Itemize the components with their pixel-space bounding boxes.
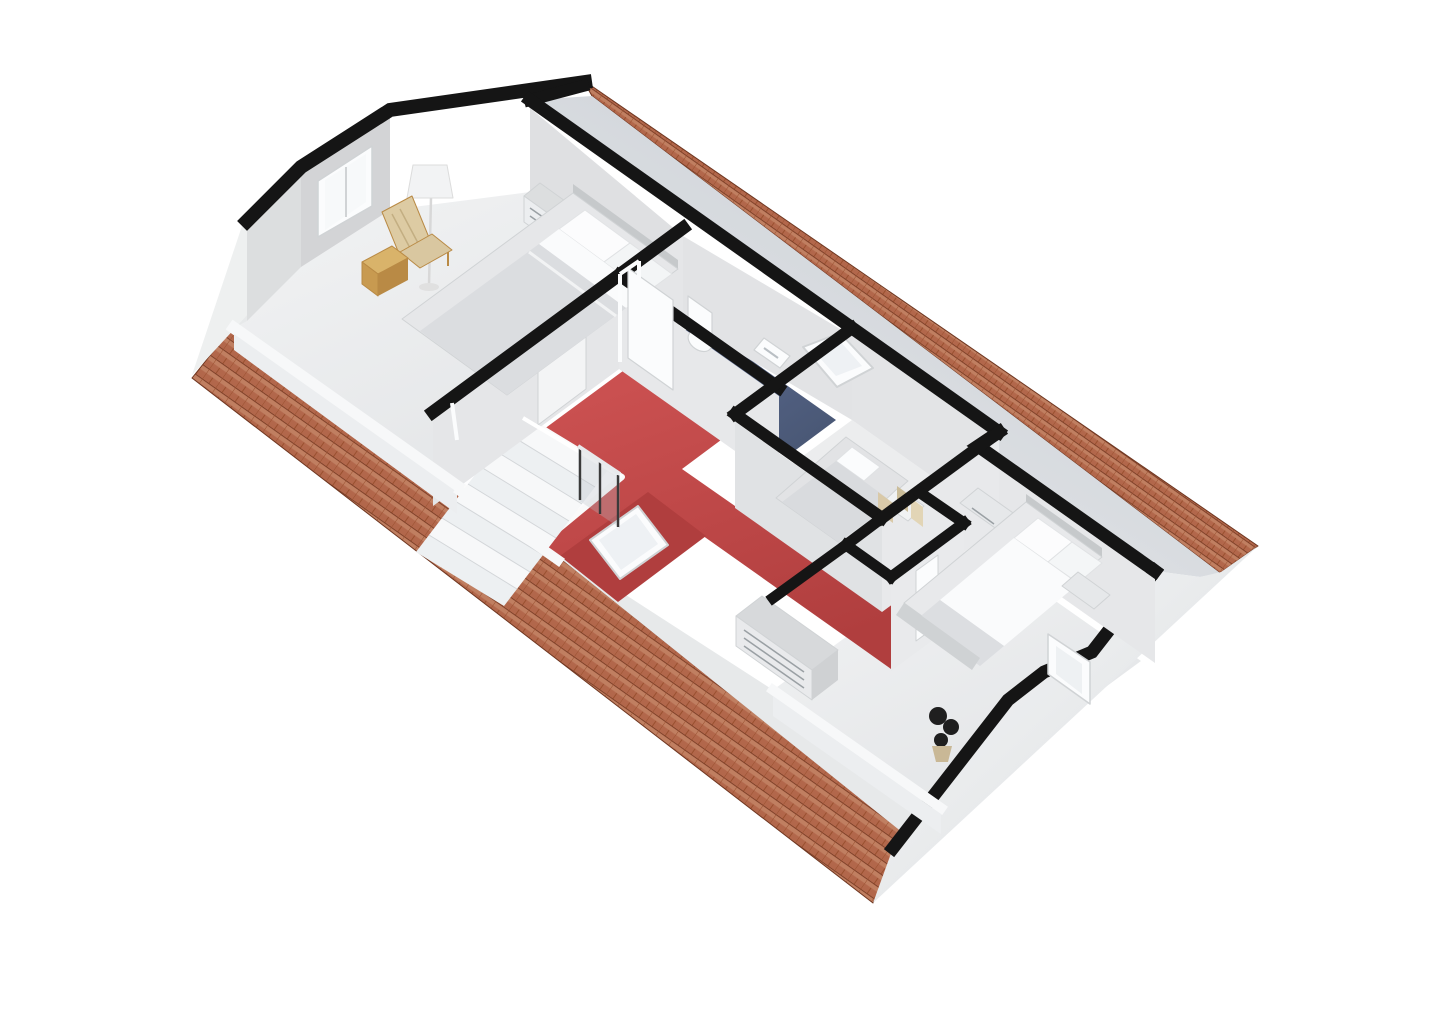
floor-lamp-base xyxy=(419,283,439,291)
plant-sphere-1 xyxy=(929,707,947,725)
floorplan-stage xyxy=(0,0,1440,1018)
floor-lamp-shade xyxy=(407,165,453,198)
floorplan-3d-render xyxy=(0,0,1440,1018)
plant-sphere-2 xyxy=(943,719,959,735)
plant-sphere-3 xyxy=(934,733,948,747)
